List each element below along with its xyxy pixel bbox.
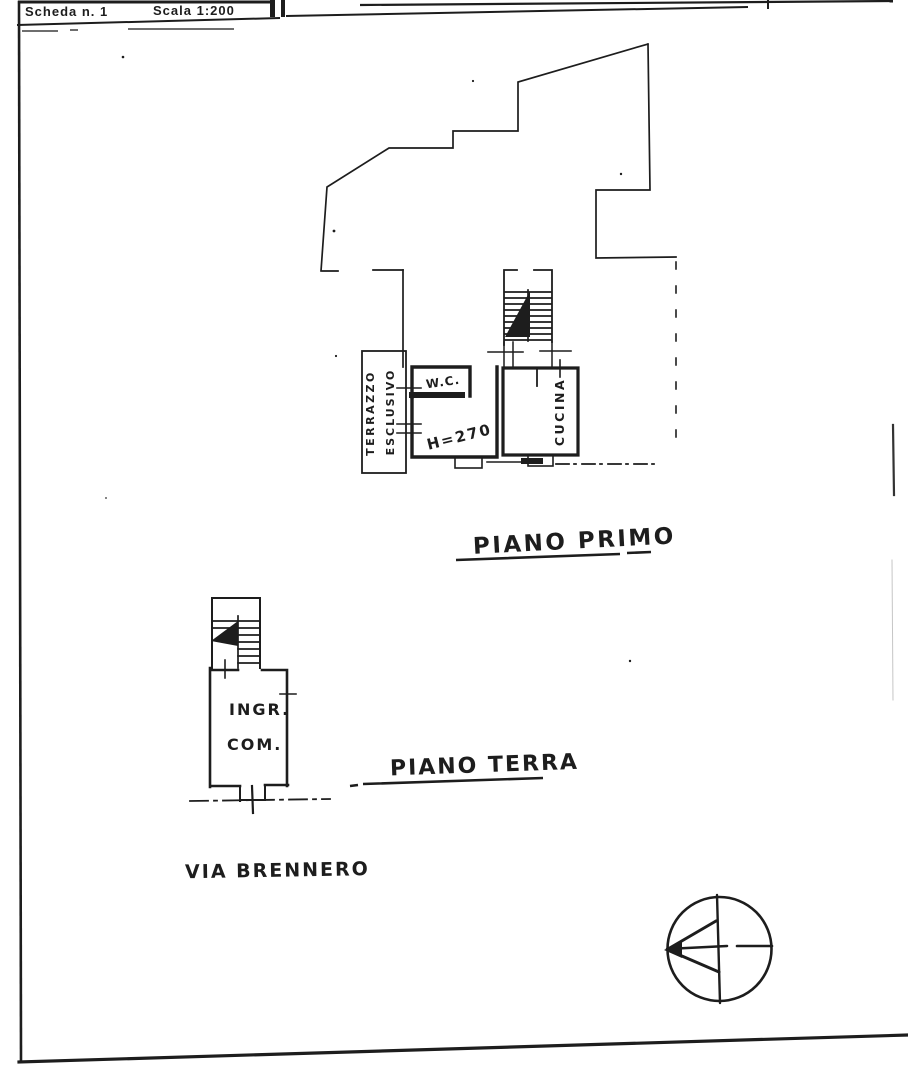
title-box-underline-dashes — [22, 29, 234, 31]
ground-floor-caption-group: PIANO TERRA — [350, 750, 579, 786]
terrace-label-line2: ESCLUSIVO — [384, 369, 397, 456]
kitchen-label: CUCINA — [552, 378, 567, 446]
entrance-room-walls — [210, 668, 288, 787]
cadastral-sheet-page: Scheda n. 1 Scala 1:200 — [0, 0, 908, 1079]
right-border-faint — [892, 560, 893, 700]
stair-door-ticks — [488, 351, 571, 352]
floor-plan-canvas: Scheda n. 1 Scala 1:200 — [0, 0, 908, 1079]
title-box-separator — [270, 0, 275, 17]
ground-floor-plan: INGR. COM. — [190, 598, 330, 813]
left-border-line — [19, 2, 21, 1062]
gf-stair-direction-arrow — [211, 621, 238, 646]
street-label: VIA BRENNERO — [185, 858, 370, 883]
window-sills — [455, 455, 553, 468]
ground-floor-caption: PIANO TERRA — [390, 750, 580, 782]
terrace-room: TERRAZZO ESCLUSIVO — [362, 351, 406, 473]
entrance-steps — [190, 785, 330, 813]
entrance-room: INGR. COM. — [210, 660, 296, 787]
wc-label: W.C. — [425, 373, 461, 392]
stair-landing-lines — [504, 342, 552, 368]
page-border — [19, 2, 908, 1062]
north-compass — [664, 895, 772, 1003]
room-height-label: H=270 — [425, 420, 494, 454]
compass-vertical-axis — [717, 895, 720, 1003]
entrance-label-line2: COM. — [227, 735, 282, 754]
frame-lower-line — [286, 7, 748, 16]
bottom-border-line — [19, 1035, 908, 1062]
scala-label: Scala 1:200 — [153, 3, 235, 18]
stairwell-ground-floor — [211, 598, 260, 668]
street-dashdot-line — [190, 799, 330, 801]
entrance-label-line1: INGR. — [229, 700, 290, 719]
frame-left-stub — [281, 0, 285, 17]
title-box-bottom-line — [17, 18, 280, 25]
title-box: Scheda n. 1 Scala 1:200 — [17, 0, 280, 31]
entrance-axis-tick — [252, 786, 253, 813]
scheda-label: Scheda n. 1 — [25, 4, 108, 19]
first-floor-caption-group: PIANO PRIMO — [456, 523, 676, 560]
building-outline — [321, 44, 676, 271]
right-border-line — [893, 425, 894, 495]
stairwell-first-floor — [488, 270, 571, 368]
frame-upper-line — [360, 1, 893, 5]
terrace-label-line1: TERRAZZO — [364, 370, 377, 456]
kitchen-sill-fill — [521, 458, 543, 464]
first-floor-plan: TERRAZZO ESCLUSIVO W.C. H=270 — [321, 44, 676, 473]
top-right-frame — [281, 0, 893, 17]
